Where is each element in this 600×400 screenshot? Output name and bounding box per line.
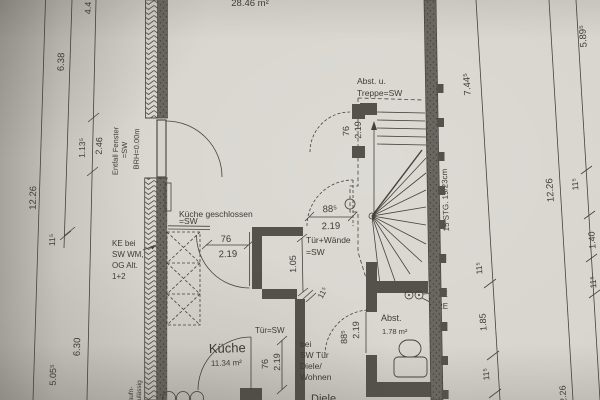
stair-door-height: 2.19	[353, 121, 363, 139]
door-88-main: 88⁵ 2.19	[305, 180, 357, 232]
treppe-note-2: Treppe=SW	[357, 88, 402, 98]
bei-note: bei	[300, 339, 311, 349]
door-swing-arc	[307, 180, 353, 226]
dim-2-46: 2.46	[94, 137, 104, 155]
entfall-fenster-note: Entfall Fenster	[111, 126, 121, 175]
diele-room-label: Diele	[311, 393, 336, 400]
left-exterior-wall	[145, 0, 169, 400]
dim-11-5-r4: 11⁵	[588, 276, 599, 289]
abst-label: Abst.	[381, 313, 402, 323]
dim-7-445: 7.44⁵	[461, 73, 474, 96]
door-leaf	[157, 120, 166, 177]
dim-11-5-niche: 11⁵	[316, 286, 329, 300]
ke-note-4: 1+2	[112, 272, 126, 281]
dim-5-055: 5.05⁵	[48, 364, 59, 386]
kitchen-partition: 76 2.19	[168, 226, 254, 288]
dim-11-5-r2: 11⁵	[481, 368, 492, 381]
dim-11-5-r3: 11⁵	[570, 178, 581, 191]
ke-note-1: KE bei	[112, 239, 136, 248]
ke-note-3: OG Alt.	[112, 261, 138, 270]
dim-1-135: 1.13⁵	[77, 138, 88, 158]
kitchen-top-door-width: 76	[221, 234, 232, 245]
kitchen-cabinets	[163, 232, 204, 400]
door-width-76: 76	[260, 359, 270, 369]
kitchen-top-door-height: 2.19	[219, 249, 238, 260]
treppe-note-1: Abst. u.	[357, 76, 386, 86]
dim-11-5-left: 11⁵	[47, 234, 57, 247]
kueche-area: 11.34 m²	[211, 358, 243, 368]
door-swing-arc	[166, 121, 222, 177]
wohnen-note: Wohnen	[300, 372, 332, 382]
edge-note-2: zulässig	[136, 380, 143, 400]
right-dimension-chain: 7.44⁵ 11⁵ 1.85 11⁵ 12.26 2.26 5.89⁵ 11⁵ …	[461, 0, 600, 400]
abst-door-width: 88⁵	[339, 330, 349, 344]
dim-12-26-left: 12.26	[28, 186, 40, 210]
stove-burner	[177, 392, 190, 400]
dim-11-5-r1: 11⁵	[474, 262, 485, 275]
sw-tuer-note: SW Tür	[300, 350, 329, 360]
abst-area: 1.78 m²	[382, 327, 408, 336]
stair-direction-arrow	[371, 121, 377, 130]
dim-5-895: 5.89⁵	[577, 25, 590, 48]
staircase: 76 2.19	[310, 98, 426, 285]
floor-plan-drawing: 4.4 6.38 12.26 1.13⁵ 2.46 11⁵ 6.30 5.05⁵…	[0, 0, 600, 400]
window-note: Entfall Fenster =SW BRH=0.00m	[111, 126, 142, 175]
dim-12-26-right: 12.26	[544, 178, 557, 202]
dim-4-4: 4.4	[83, 2, 93, 15]
abst-door-height: 2.19	[351, 321, 361, 339]
left-dimension-chain: 4.4 6.38 12.26 1.13⁵ 2.46 11⁵ 6.30 5.05⁵	[28, 0, 105, 400]
dim-1-40: 1.40	[586, 231, 597, 249]
dim-6-30: 6.30	[72, 338, 83, 357]
tuer-waende-note: Tür+Wände	[306, 235, 351, 245]
tuer-sw-note: Tür=SW	[255, 326, 285, 335]
dim-1-85: 1.85	[477, 313, 488, 331]
edge-note-1: aufn-	[128, 386, 135, 400]
stair-door-width: 76	[341, 126, 351, 136]
dim-2-26: 2.26	[557, 385, 568, 400]
kueche-geschlossen-sw: =SW	[179, 216, 198, 226]
door-height-219: 2.19	[272, 353, 282, 371]
dim-6-38: 6.38	[56, 53, 67, 72]
floor-plan-photo: 4.4 6.38 12.26 1.13⁵ 2.46 11⁵ 6.30 5.05⁵…	[0, 0, 600, 400]
door-width-88: 88⁵	[323, 204, 338, 215]
ke-note-2: SW WM,	[112, 250, 144, 259]
brh-note: BRH=0.00m	[132, 128, 142, 169]
door-height-219: 2.19	[322, 221, 341, 232]
toilet-icon	[394, 340, 427, 377]
main-room-area: 28.46 m²	[231, 0, 269, 9]
dim-1-05: 1.05	[288, 255, 298, 273]
edge-note: aufn- zulässig	[128, 380, 143, 400]
tuer-waende-sw: =SW	[306, 247, 325, 257]
entfall-sw-note: =SW	[120, 141, 129, 159]
diele-slash-note: Diele/	[300, 361, 322, 371]
diele-note: bei SW Tür Diele/ Wohnen	[300, 339, 332, 382]
stove-burner	[191, 392, 204, 400]
